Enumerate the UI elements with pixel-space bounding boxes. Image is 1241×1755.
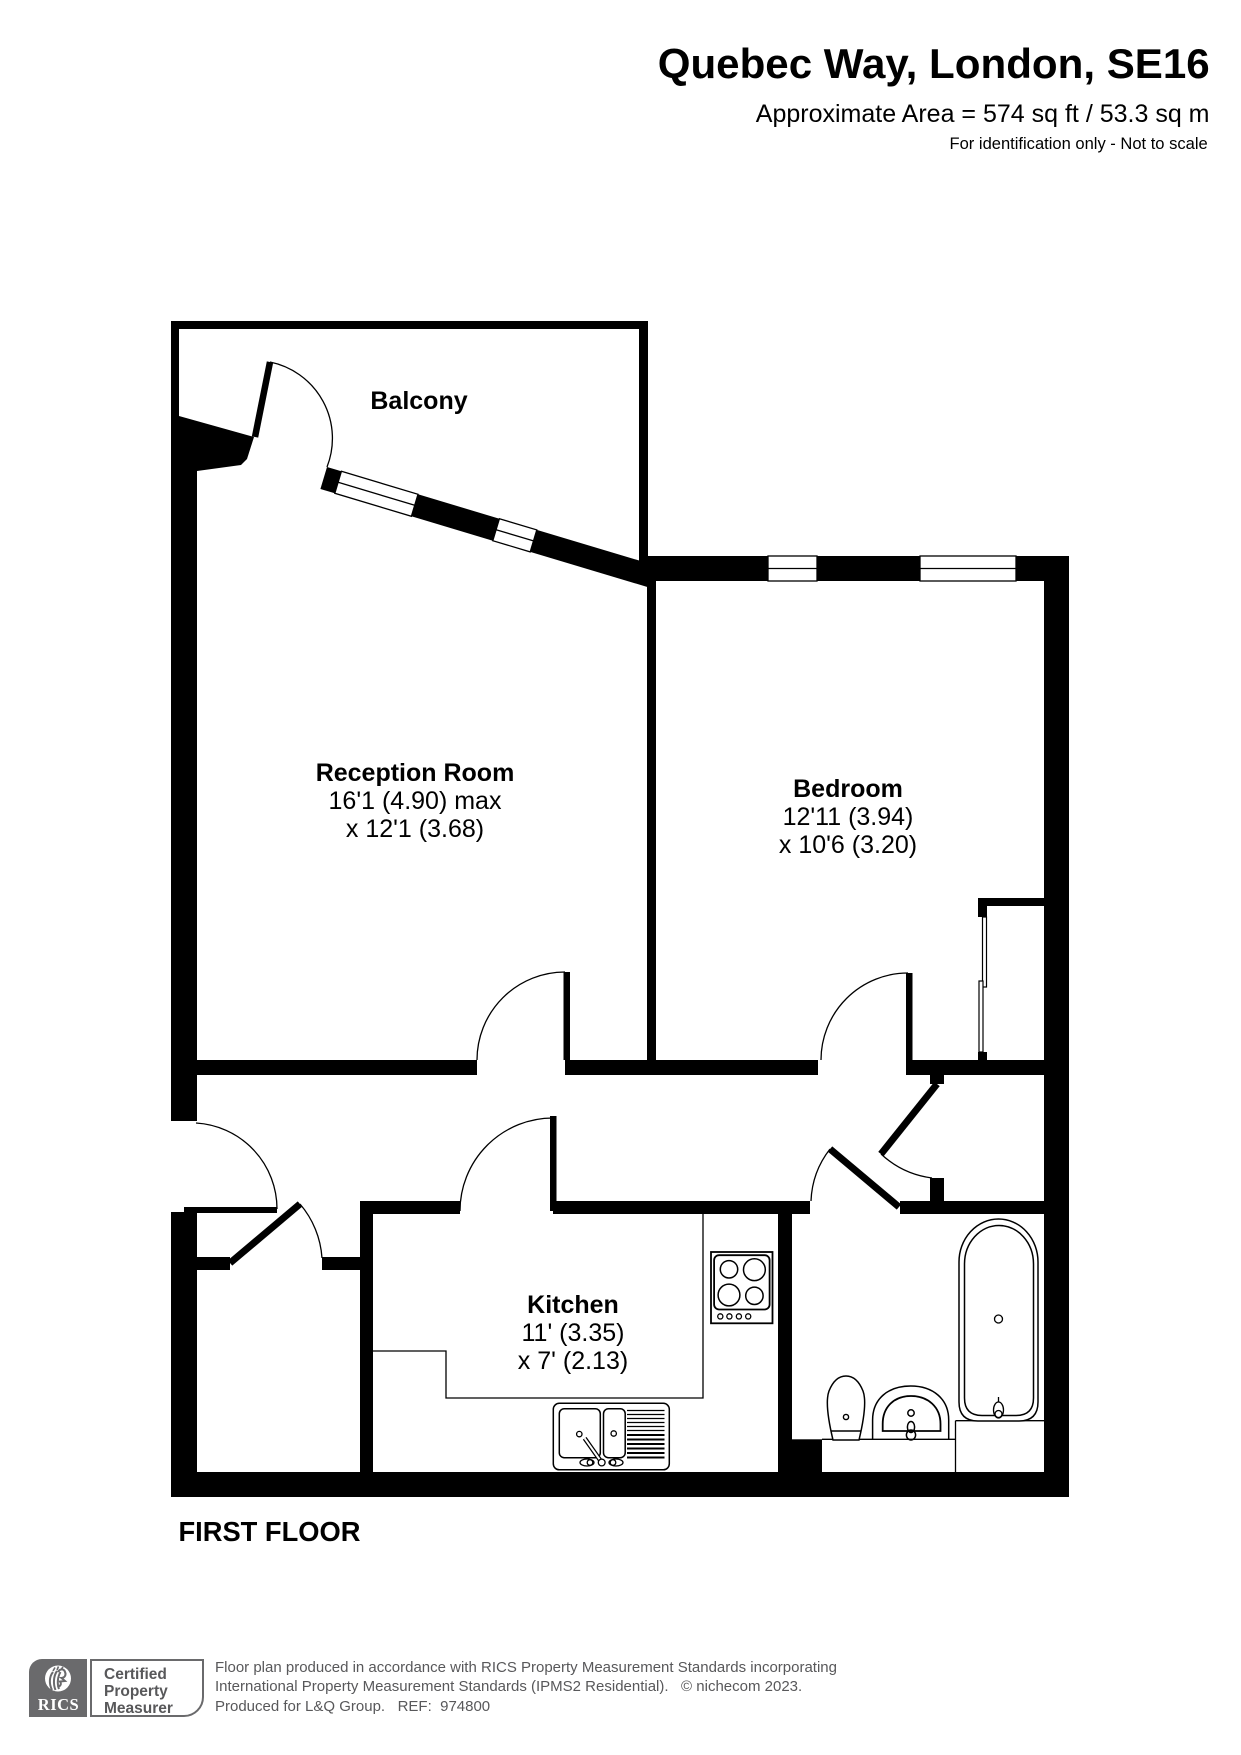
svg-text:x 10'6 (3.20): x 10'6 (3.20) [779, 831, 917, 859]
svg-text:x 7' (2.13): x 7' (2.13) [518, 1347, 628, 1375]
svg-text:16'1 (4.90) max: 16'1 (4.90) max [329, 787, 502, 815]
svg-text:Reception Room: Reception Room [316, 759, 515, 787]
svg-text:x 12'1 (3.68): x 12'1 (3.68) [346, 815, 484, 843]
svg-text:Balcony: Balcony [370, 387, 467, 415]
svg-text:12'11 (3.94): 12'11 (3.94) [783, 803, 914, 831]
svg-text:11' (3.35): 11' (3.35) [522, 1319, 625, 1347]
svg-text:FIRST FLOOR: FIRST FLOOR [179, 1516, 361, 1547]
svg-text:Kitchen: Kitchen [527, 1291, 619, 1319]
svg-text:RICS: RICS [38, 1695, 79, 1714]
svg-text:Bedroom: Bedroom [793, 775, 903, 803]
